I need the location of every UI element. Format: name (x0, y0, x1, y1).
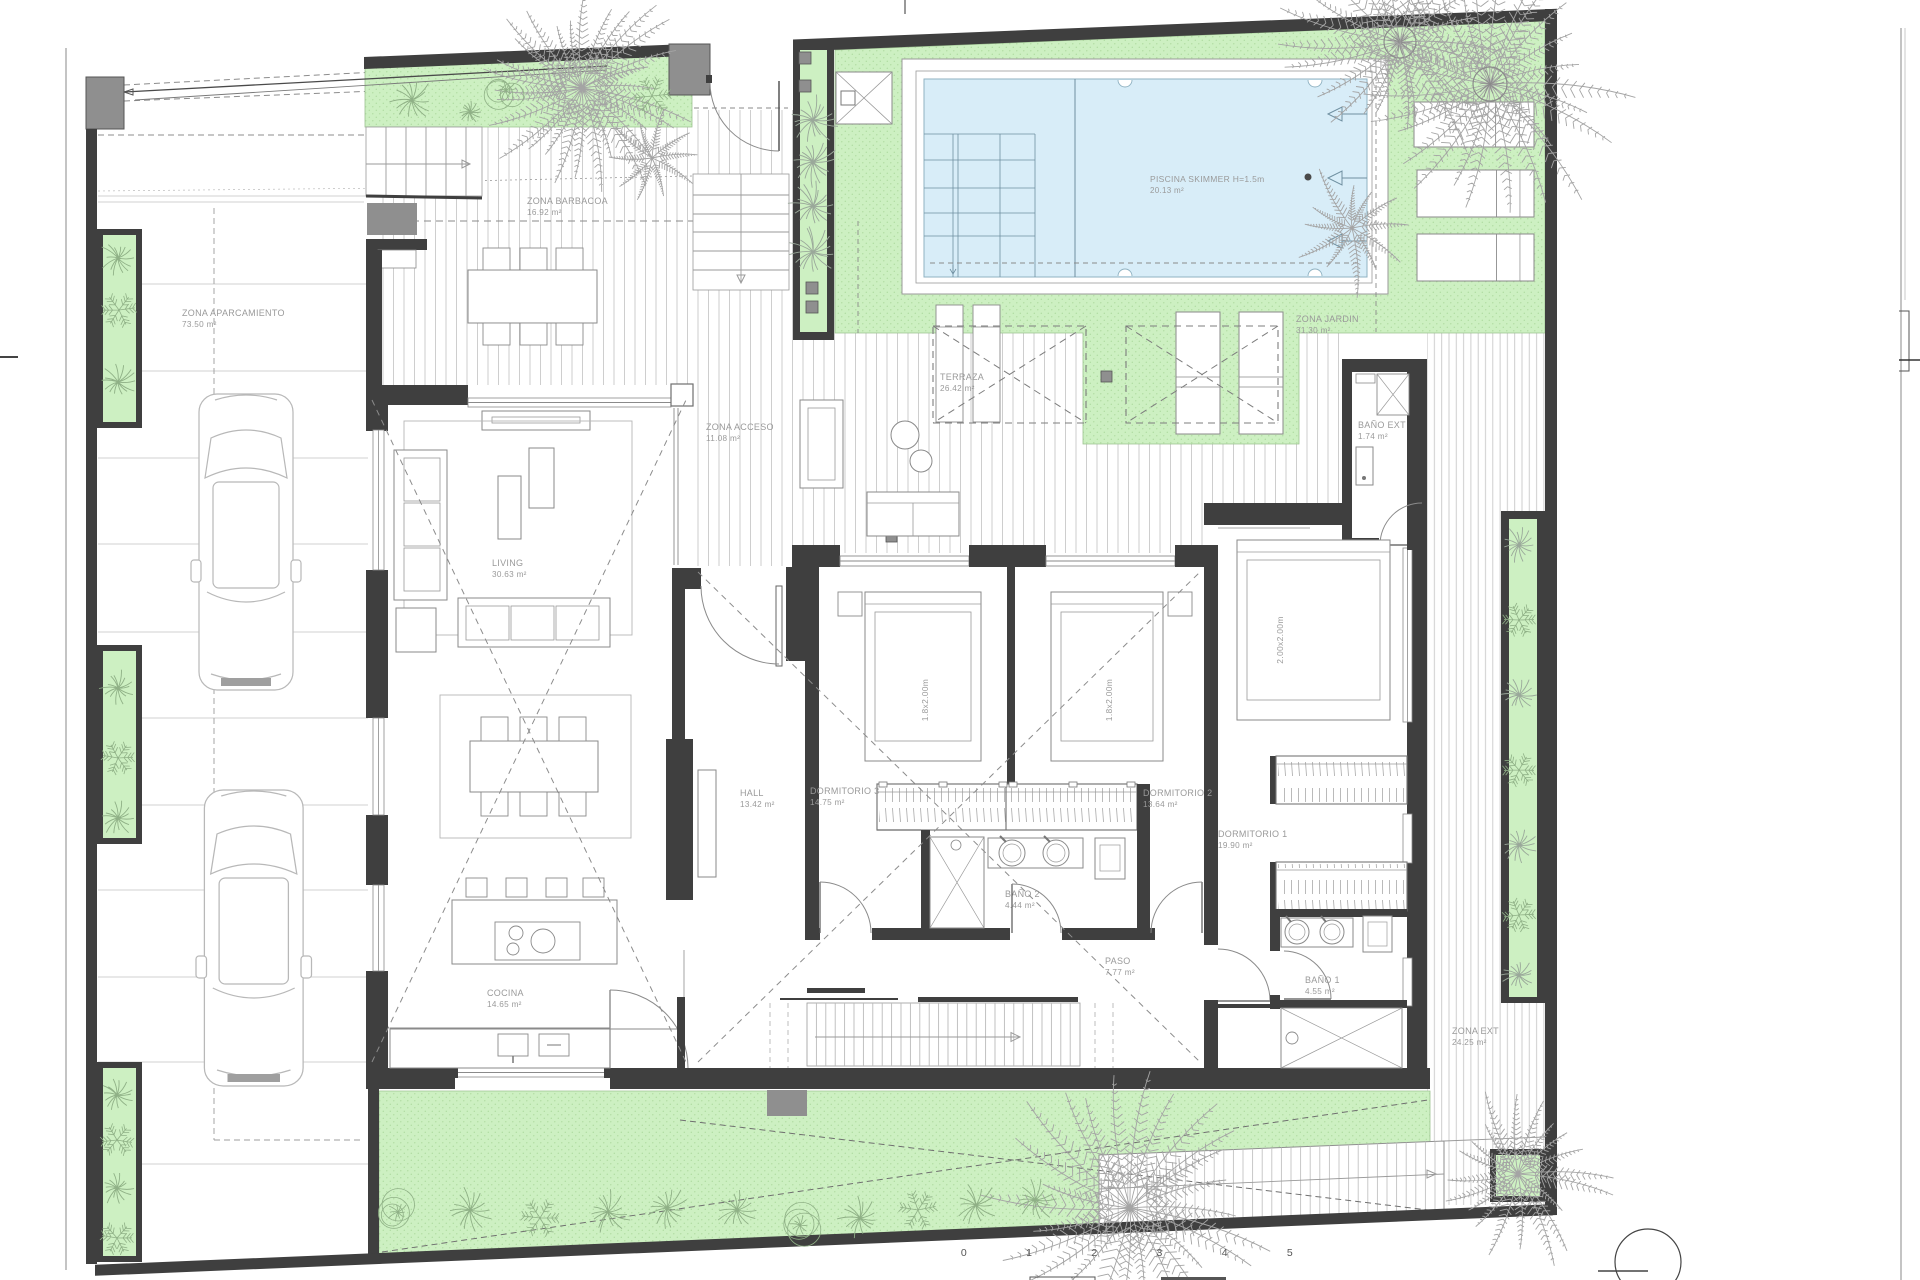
svg-text:13.64 m²: 13.64 m² (1143, 800, 1178, 809)
svg-text:4.55 m²: 4.55 m² (1305, 987, 1335, 996)
svg-text:2: 2 (1091, 1247, 1097, 1259)
svg-text:11.08 m²: 11.08 m² (706, 434, 740, 443)
svg-text:26.42 m²: 26.42 m² (940, 384, 975, 393)
svg-text:DORMITORIO 3: DORMITORIO 3 (810, 786, 879, 796)
svg-text:ZONA ACCESO: ZONA ACCESO (706, 422, 774, 432)
svg-text:24.25 m²: 24.25 m² (1452, 1038, 1487, 1047)
svg-text:TERRAZA: TERRAZA (940, 372, 984, 382)
svg-text:BAÑO 1: BAÑO 1 (1305, 975, 1340, 985)
svg-text:19.90 m²: 19.90 m² (1218, 841, 1253, 850)
svg-text:3: 3 (1157, 1247, 1163, 1259)
svg-text:7.77 m²: 7.77 m² (1105, 968, 1135, 977)
svg-text:LIVING: LIVING (492, 558, 523, 568)
svg-text:DORMITORIO 2: DORMITORIO 2 (1143, 788, 1212, 798)
svg-text:ZONA EXT: ZONA EXT (1452, 1026, 1499, 1036)
svg-text:ZONA BARBACOA: ZONA BARBACOA (527, 196, 608, 206)
svg-text:20.13 m²: 20.13 m² (1150, 186, 1184, 195)
svg-text:14.75 m²: 14.75 m² (810, 798, 845, 807)
svg-text:PISCINA SKIMMER H=1.5m: PISCINA SKIMMER H=1.5m (1150, 174, 1265, 184)
svg-text:30.63 m²: 30.63 m² (492, 570, 527, 579)
svg-text:BAÑO EXT: BAÑO EXT (1358, 420, 1406, 430)
svg-text:HALL: HALL (740, 788, 764, 798)
svg-text:5: 5 (1287, 1247, 1293, 1259)
svg-text:BAÑO 2: BAÑO 2 (1005, 889, 1040, 899)
svg-text:COCINA: COCINA (487, 988, 524, 998)
svg-text:31.30 m²: 31.30 m² (1296, 326, 1331, 335)
svg-text:14.65 m²: 14.65 m² (487, 1000, 522, 1009)
svg-text:DORMITORIO 1: DORMITORIO 1 (1218, 829, 1287, 839)
svg-text:4: 4 (1222, 1247, 1228, 1259)
svg-text:4.44 m²: 4.44 m² (1005, 901, 1035, 910)
svg-text:13.42 m²: 13.42 m² (740, 800, 775, 809)
svg-text:1: 1 (1026, 1247, 1032, 1259)
svg-text:1.8x2.00m: 1.8x2.00m (920, 679, 930, 721)
svg-text:ZONA JARDIN: ZONA JARDIN (1296, 314, 1359, 324)
svg-text:2.00x2.00m: 2.00x2.00m (1275, 616, 1285, 663)
svg-text:1.74 m²: 1.74 m² (1358, 432, 1388, 441)
svg-text:73.50 m²: 73.50 m² (182, 320, 217, 329)
svg-text:0: 0 (961, 1247, 967, 1259)
svg-text:PASO: PASO (1105, 956, 1131, 966)
svg-text:16.92 m²: 16.92 m² (527, 208, 562, 217)
svg-text:ZONA APARCAMIENTO: ZONA APARCAMIENTO (182, 308, 285, 318)
svg-text:1.8x2.00m: 1.8x2.00m (1104, 679, 1114, 721)
